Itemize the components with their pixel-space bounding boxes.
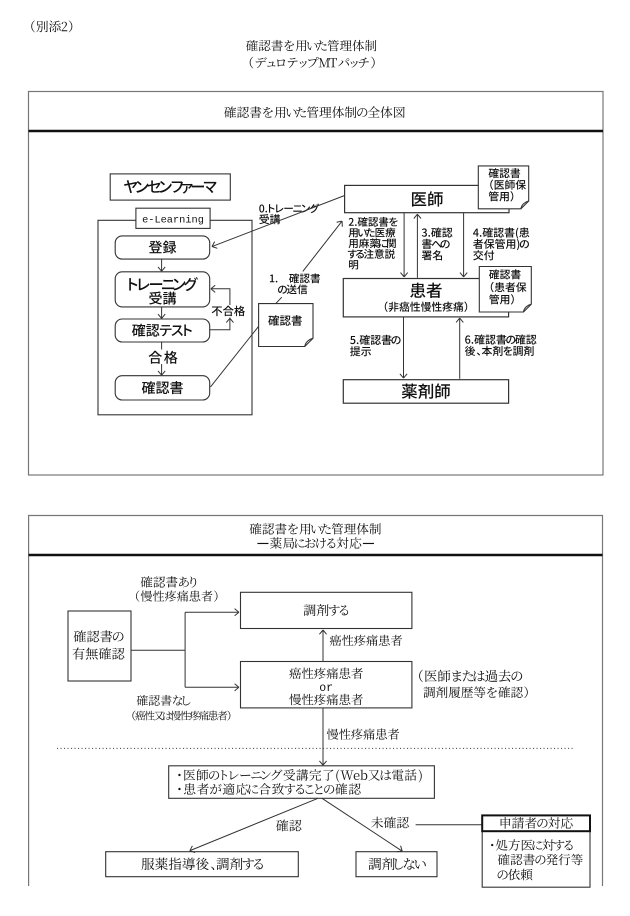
svg-text:or: or bbox=[319, 682, 333, 695]
svg-text:e-Learning: e-Learning bbox=[142, 214, 204, 226]
